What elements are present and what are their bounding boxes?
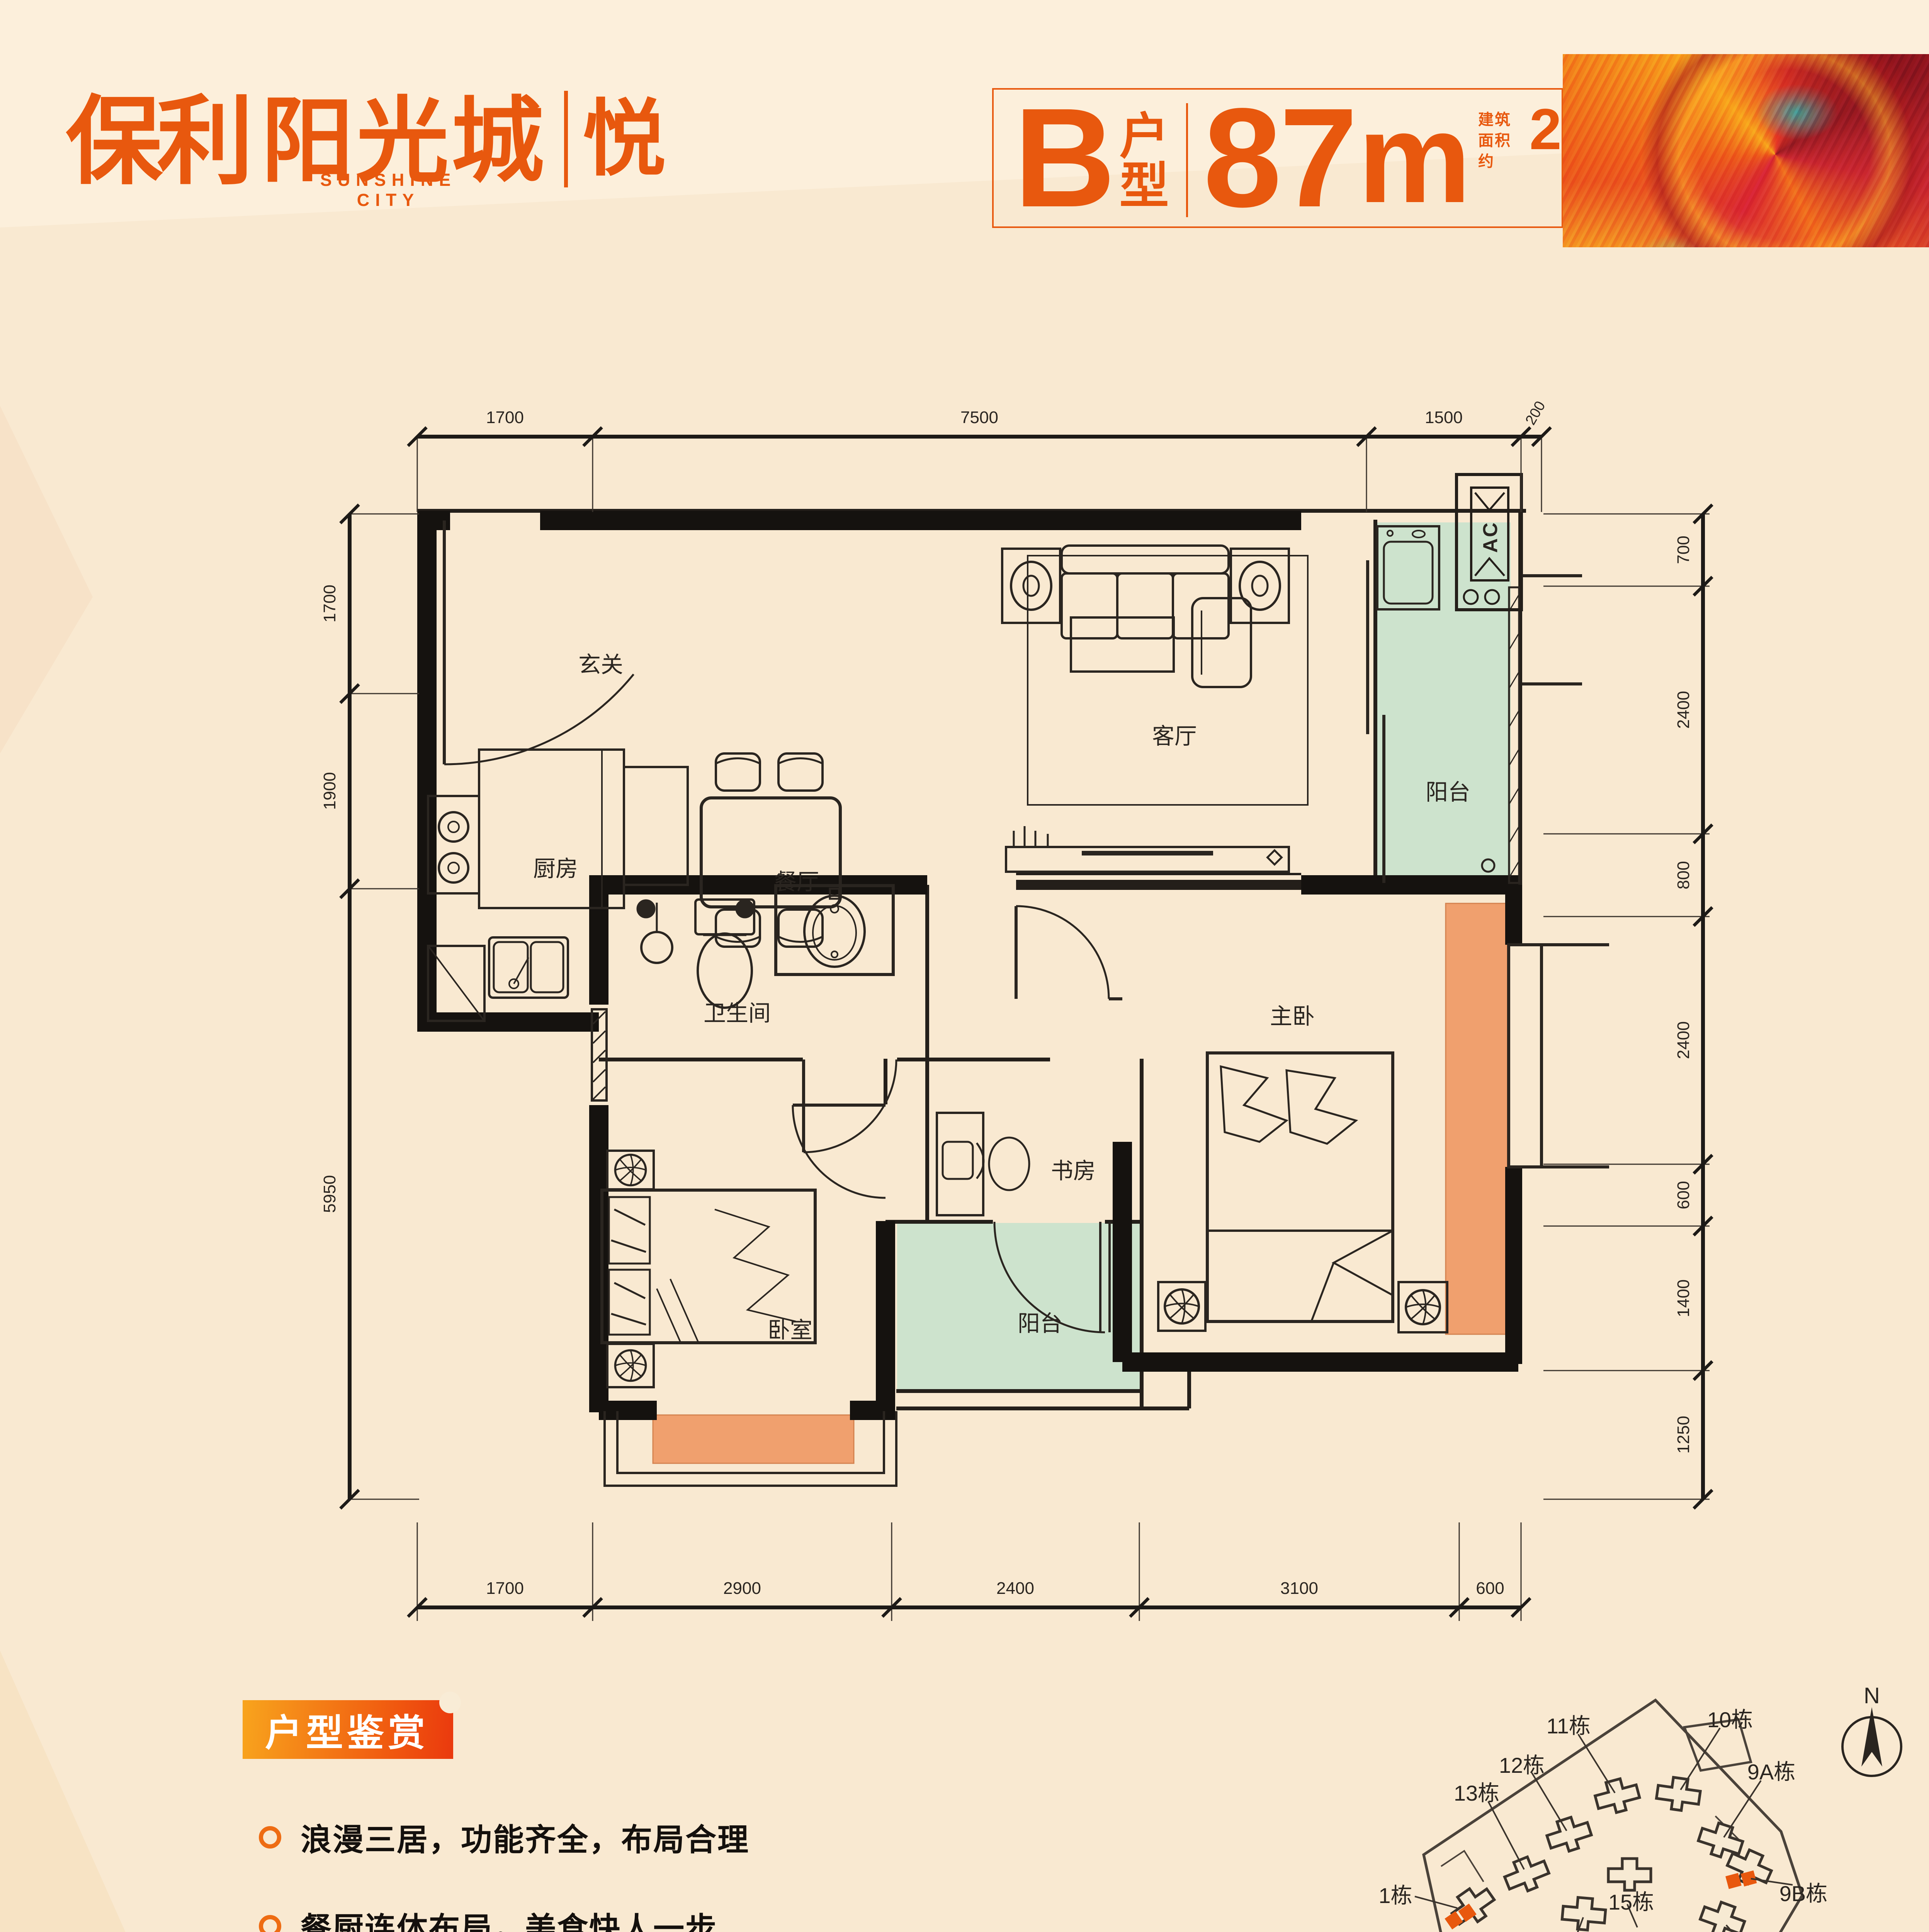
room-label-balcony-main: 阳台: [1426, 780, 1470, 805]
dim-right-5: 1400: [1674, 1279, 1693, 1317]
site-map: 11栋 12栋 13栋 10栋 9A栋 9B栋 15栋 14栋 1栋 2栋 3栋…: [1290, 1673, 1929, 1932]
unit-badge: B 户 型 87 m 建筑 面积约 2: [992, 88, 1563, 228]
room-label-balcony-second: 阳台: [1018, 1311, 1062, 1336]
dim-bottom-2: 2400: [996, 1579, 1034, 1598]
logo-divider: [564, 91, 568, 187]
dim-right-4: 600: [1674, 1181, 1693, 1209]
living-furniture: [1002, 546, 1308, 872]
balcony-second-fill: [897, 1223, 1140, 1390]
building-label: 12栋: [1499, 1753, 1545, 1777]
dim-right-0: 700: [1674, 536, 1693, 564]
bedroom-furniture: [602, 1151, 815, 1387]
dim-left-1: 1900: [320, 772, 339, 810]
logo-brand: 保利: [66, 83, 248, 199]
floor-plan: AC: [270, 386, 1739, 1662]
dim-right-3: 2400: [1674, 1021, 1693, 1059]
building-label: 11栋: [1547, 1714, 1591, 1738]
poster: 保利 阳光城 悦 SUNSHINE CITY B 户 型 87 m 建筑 面积约…: [0, 0, 1929, 1932]
ac-label: AC: [1479, 521, 1502, 553]
dim-bottom-0: 1700: [486, 1579, 524, 1598]
building-label: 15栋: [1608, 1890, 1654, 1914]
bullet-ring-icon: [259, 1915, 281, 1932]
room-label-bathroom: 卫生间: [704, 1001, 771, 1026]
wardrobe-bedroom-fill: [653, 1415, 854, 1463]
feature-item: 浪漫三居，功能齐全，布局合理: [247, 1793, 1174, 1882]
room-label-kitchen: 厨房: [533, 856, 578, 881]
features-heading-box: 户型鉴赏: [243, 1700, 453, 1759]
features-list: 浪漫三居，功能齐全，布局合理 餐厨连体布局，美食快人一步 书房阳台相连，随心创变…: [247, 1793, 1174, 1932]
unit-word-bottom: 型: [1120, 162, 1169, 211]
area-note-bottom: 面积约: [1478, 130, 1527, 172]
logo-subtitle: SUNSHINE CITY: [299, 170, 477, 210]
room-label-master: 主卧: [1270, 1004, 1315, 1029]
area-note-top: 建筑: [1478, 109, 1527, 130]
dim-top-3: 200: [1523, 398, 1549, 428]
building-label: 9A栋: [1747, 1760, 1796, 1784]
compass-icon: N: [1842, 1683, 1901, 1776]
room-label-dining: 餐厅: [774, 869, 819, 895]
room-label-bedroom: 卧室: [768, 1318, 812, 1343]
badge-divider: [1186, 103, 1188, 217]
building-label: 1栋: [1378, 1883, 1412, 1908]
building-label: 10栋: [1707, 1708, 1753, 1732]
logo-suffix: 悦: [583, 83, 666, 195]
dim-bottom-1: 2900: [723, 1579, 761, 1598]
area-value: 87: [1203, 100, 1356, 216]
room-label-living: 客厅: [1152, 724, 1197, 749]
features-heading-circle: [439, 1692, 461, 1713]
dim-right-2: 800: [1674, 861, 1693, 889]
window-bay-master: [1509, 576, 1609, 1167]
background-triangle-bottom-left: [0, 1604, 162, 1932]
building-label: 9B栋: [1779, 1881, 1828, 1906]
area-unit: m: [1358, 100, 1471, 216]
dim-top-1: 7500: [960, 408, 998, 427]
room-label-study: 书房: [1051, 1158, 1096, 1184]
unit-word-top: 户: [1120, 112, 1169, 162]
bathroom-fixtures: [637, 886, 893, 1008]
artwork-waves: [1563, 54, 1929, 247]
dim-top-2: 1500: [1425, 408, 1463, 427]
dim-right-1: 2400: [1674, 691, 1693, 729]
unit-letter: B: [1014, 100, 1116, 216]
dim-left-2: 5950: [320, 1175, 339, 1213]
wardrobe-master-fill: [1446, 903, 1508, 1334]
dim-left-0: 1700: [320, 585, 339, 622]
bullet-ring-icon: [259, 1826, 281, 1849]
feature-text: 餐厨连体布局，美食快人一步: [301, 1904, 717, 1932]
dim-bottom-4: 600: [1476, 1579, 1504, 1598]
doors: [444, 520, 1122, 1332]
room-label-entry: 玄关: [578, 652, 623, 677]
area-exponent: 2: [1530, 96, 1562, 163]
compass-label: N: [1864, 1683, 1880, 1708]
study-furniture: [937, 1113, 1029, 1215]
unit-word: 户 型: [1120, 112, 1169, 211]
dim-top-0: 1700: [486, 408, 524, 427]
feature-item: 餐厨连体布局，美食快人一步: [247, 1882, 1174, 1932]
dining-furniture: [701, 753, 840, 947]
master-furniture: [1158, 1053, 1447, 1332]
balcony-main-fill: [1377, 522, 1511, 882]
features-heading: 户型鉴赏: [265, 1703, 429, 1757]
dim-right-6: 1250: [1674, 1416, 1693, 1454]
feature-text: 浪漫三居，功能齐全，布局合理: [301, 1815, 750, 1860]
building-label: 13栋: [1454, 1781, 1499, 1805]
kitchen-fixtures: [428, 750, 688, 1021]
background-triangle-left: [0, 406, 93, 753]
area-note: 建筑 面积约: [1478, 109, 1527, 172]
dim-bottom-3: 3100: [1280, 1579, 1318, 1598]
site-building-labels: 11栋 12栋 13栋 10栋 9A栋 9B栋 15栋 14栋 1栋 2栋 3栋…: [1378, 1708, 1827, 1932]
abstract-artwork: [1563, 54, 1929, 247]
